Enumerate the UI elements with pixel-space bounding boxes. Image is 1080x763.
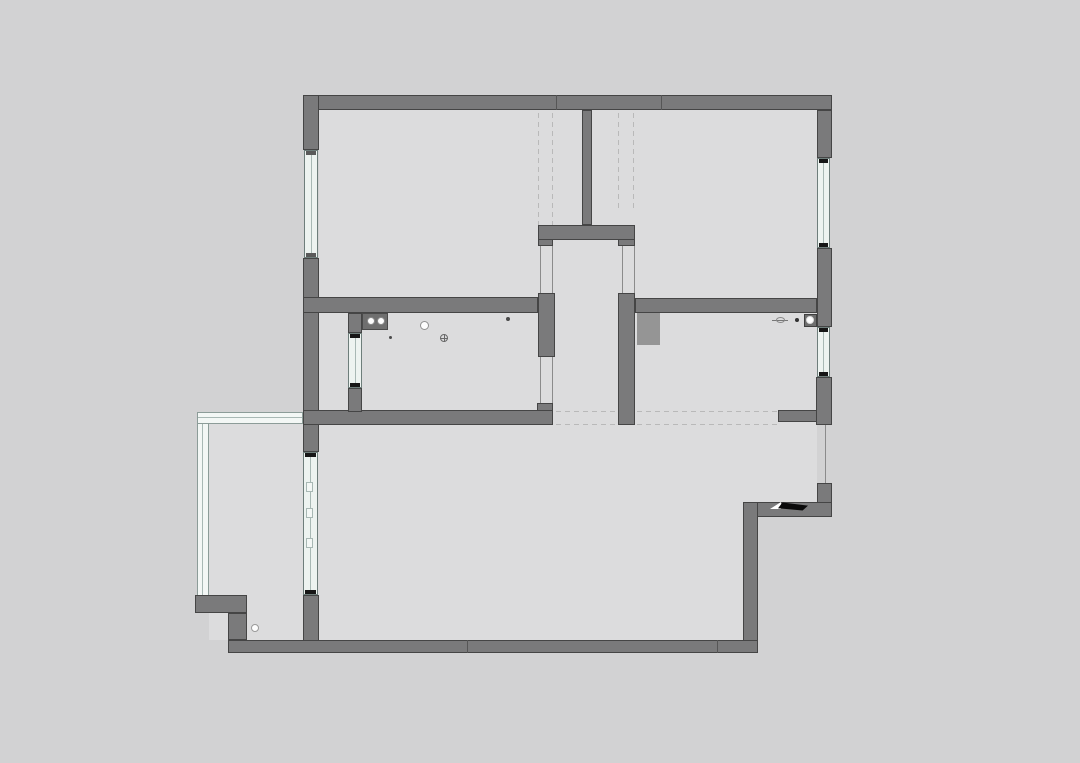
balcony-glazing-top bbox=[197, 412, 303, 424]
balcony-glazing-top-inner-line bbox=[198, 417, 302, 418]
bathroom-east-window-glass-line bbox=[823, 329, 824, 375]
pipe-duct-block bbox=[637, 313, 660, 345]
kitchen-lamp bbox=[420, 321, 429, 330]
faucet-symbol-body bbox=[776, 317, 785, 323]
entry-door-line bbox=[825, 425, 826, 483]
small-dot bbox=[506, 317, 510, 321]
living-east-wall bbox=[743, 502, 758, 653]
right-wall-upper bbox=[817, 110, 832, 158]
opening-jamb-line bbox=[552, 357, 553, 403]
wall-joint-seam bbox=[556, 95, 557, 110]
bedroom1-west-window-glass-line bbox=[311, 152, 312, 256]
hall-south-wall bbox=[538, 225, 635, 240]
balcony-sliding-door-frame-tick-top bbox=[305, 453, 316, 457]
bedroom2-south-wall bbox=[635, 298, 817, 313]
right-wall-lower bbox=[816, 377, 832, 425]
sink-basin-left bbox=[367, 317, 375, 325]
bedroom1-west-window-frame-tick-top bbox=[306, 151, 316, 155]
bedroom1-west-window-frame-tick-bottom bbox=[306, 253, 316, 257]
opening-jamb-line bbox=[622, 246, 623, 293]
washer-drain bbox=[806, 316, 814, 324]
hall-partition-wall bbox=[582, 110, 592, 225]
demolished-wall-dash bbox=[556, 424, 778, 425]
demolished-wall-dash bbox=[552, 113, 553, 225]
balcony-step-wall-h bbox=[195, 595, 247, 613]
right-wall-mid bbox=[817, 248, 832, 327]
kitchen-door-notch bbox=[537, 403, 553, 411]
bedroom-2-floor bbox=[635, 110, 817, 298]
bedroom2-east-window-frame-tick-top bbox=[819, 159, 828, 163]
wall-joint-seam bbox=[717, 640, 718, 653]
demolished-wall-dash bbox=[556, 411, 778, 412]
kitchen-west-window-glass-line bbox=[355, 335, 356, 386]
floor-plan-canvas bbox=[0, 0, 1080, 763]
bathroom-floor bbox=[635, 313, 817, 425]
opening-jamb-line bbox=[634, 246, 635, 293]
balcony-glazing-left bbox=[197, 412, 209, 597]
balcony-sliding-door-panel-mark bbox=[306, 538, 313, 548]
balcony-glazing-left-inner-line bbox=[202, 413, 203, 596]
bedroom-1-floor bbox=[319, 110, 538, 297]
opening-jamb-line bbox=[540, 357, 541, 403]
balcony-sliding-door-frame-tick-bottom bbox=[305, 590, 316, 594]
bedroom2-east-window-glass-line bbox=[823, 160, 824, 246]
bedroom2-east-window-frame-tick-bottom bbox=[819, 243, 828, 247]
top-exterior-wall bbox=[303, 95, 832, 110]
bathroom-west-wall bbox=[618, 293, 635, 425]
left-wall-upper bbox=[303, 95, 319, 150]
kitchen-south-wall bbox=[303, 410, 553, 425]
entry-north-stub bbox=[778, 410, 817, 422]
hall-door-jamb-right bbox=[618, 240, 635, 246]
kitchen-east-stub bbox=[538, 293, 555, 357]
balcony-sliding-door-glass-line bbox=[310, 454, 311, 593]
kitchen-west-window-frame-tick-top bbox=[350, 334, 360, 338]
sink-basin-right bbox=[377, 317, 385, 325]
bedroom1-south-wall bbox=[303, 297, 538, 313]
wall-joint-seam bbox=[661, 95, 662, 110]
opening-jamb-line bbox=[540, 246, 541, 293]
wall-joint-seam bbox=[467, 640, 468, 653]
left-wall-mid bbox=[303, 258, 319, 413]
opening-jamb-line bbox=[552, 246, 553, 293]
entry-floor bbox=[635, 425, 817, 502]
light-well-floor bbox=[319, 313, 348, 410]
small-dot bbox=[389, 336, 392, 339]
bathroom-east-window-frame-tick-bottom bbox=[819, 372, 828, 376]
kitchen-west-window-frame-tick-bottom bbox=[350, 383, 360, 387]
kitchen-west-wall-top bbox=[348, 313, 362, 333]
balcony-sliding-door-panel-mark bbox=[306, 508, 313, 518]
bathroom-east-window-frame-tick-top bbox=[819, 328, 828, 332]
demolished-wall-dash bbox=[618, 113, 619, 212]
balcony-step-wall-v bbox=[228, 613, 247, 640]
faucet-symbol-dot bbox=[795, 318, 799, 322]
floor-drain-symbol-cross-v bbox=[444, 334, 445, 342]
demolished-wall-dash bbox=[633, 113, 634, 212]
kitchen-west-wall-bottom bbox=[348, 388, 362, 412]
bottom-exterior-wall bbox=[228, 640, 758, 653]
balcony-sliding-door-panel-mark bbox=[306, 482, 313, 492]
balcony-drain bbox=[251, 624, 259, 632]
demolished-wall-dash bbox=[538, 113, 539, 225]
